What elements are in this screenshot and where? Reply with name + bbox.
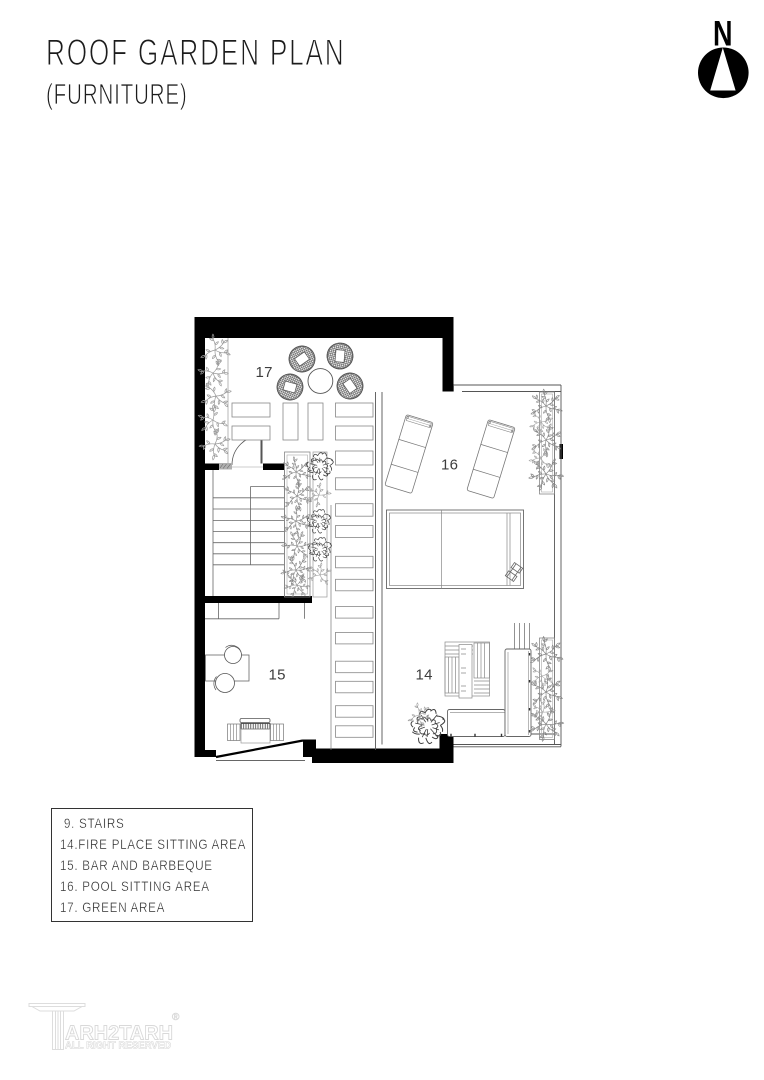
svg-text:17: 17 (256, 364, 273, 381)
svg-text:16: 16 (441, 457, 458, 474)
svg-text:ALL RIGHT RESERVED: ALL RIGHT RESERVED (65, 1040, 171, 1052)
svg-text:15: 15 (269, 667, 286, 684)
svg-text:14: 14 (416, 667, 433, 684)
svg-text:®: ® (172, 1012, 180, 1023)
